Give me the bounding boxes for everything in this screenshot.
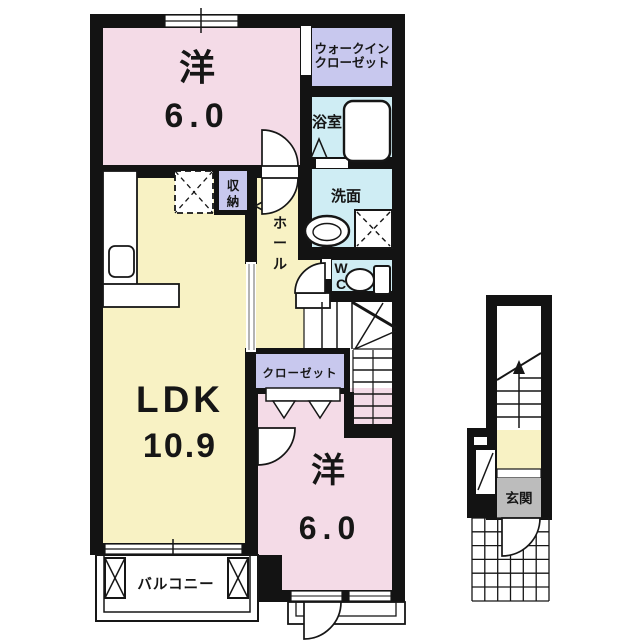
label-bedroom-bottom-size: 6.0 xyxy=(299,510,361,546)
label-ldk-size: 10.9 xyxy=(143,427,217,465)
first-floor-strip xyxy=(467,295,552,601)
label-hall-char1: ホ xyxy=(273,215,287,231)
label-bathroom: 浴室 xyxy=(312,113,342,131)
label-wic-line1: ウォークイン xyxy=(314,42,389,56)
label-wc-line1: W xyxy=(334,260,348,276)
wall-wic-bath xyxy=(300,86,396,97)
label-bedroom-bottom: 洋 xyxy=(311,452,345,490)
wall-right xyxy=(392,14,405,602)
door-arc-entrance-2f xyxy=(304,602,341,639)
porch-2f xyxy=(288,602,405,639)
kitchen-counter-horizontal xyxy=(103,284,179,307)
wall-stairs-top xyxy=(320,291,405,302)
toilet-icon xyxy=(346,266,390,294)
window-bedroom-bottom xyxy=(291,591,391,601)
strip-bump-window xyxy=(474,437,487,445)
washer-pan-icon xyxy=(355,210,392,248)
label-entrance: 玄関 xyxy=(506,490,533,506)
label-wic-line2: クローゼット xyxy=(314,55,389,70)
strip-step xyxy=(497,469,541,478)
label-bedroom-top-size: 6.0 xyxy=(164,97,229,135)
label-hall-char3: ル xyxy=(273,256,287,272)
bathtub-icon xyxy=(344,101,390,161)
floor-plan-svg: 洋 6.0 ウォークイン クローゼット 浴室 洗面 W C ホ ー ル 収 納 … xyxy=(0,0,640,640)
wall-stairs-bottom xyxy=(344,424,405,438)
wall-top xyxy=(90,14,405,28)
sink-inner-icon xyxy=(313,224,341,241)
strip-landing xyxy=(497,430,541,469)
porch-grid-1f xyxy=(472,518,549,601)
label-washroom: 洗面 xyxy=(331,187,361,205)
door-arc-entrance-1f xyxy=(502,518,540,556)
label-bedroom-top: 洋 xyxy=(179,47,215,88)
wall-corner-chunk xyxy=(255,555,282,602)
toilet-tank xyxy=(374,266,390,294)
label-hall-char2: ー xyxy=(273,235,287,251)
wall-hall-washroom xyxy=(298,165,312,260)
closet-rod xyxy=(266,388,340,401)
label-storage-char1: 収 xyxy=(227,178,240,193)
label-ldk: LDK xyxy=(136,379,224,420)
label-wc-line2: C xyxy=(336,276,346,292)
opening-wic xyxy=(301,26,311,75)
label-balcony: バルコニー xyxy=(137,576,214,593)
label-storage-char2: 納 xyxy=(227,194,240,209)
wall-left xyxy=(90,14,103,555)
stairs-2f-top-step xyxy=(296,293,330,308)
sliding-partition-ldk-hall xyxy=(246,262,256,352)
opening-bath-door xyxy=(316,159,348,168)
toilet-bowl xyxy=(346,269,374,291)
kitchen-sink-icon xyxy=(109,246,134,277)
stairs-2f-rail-diagonal xyxy=(352,302,396,328)
balcony-post-right xyxy=(228,558,248,598)
label-closet: クローゼット xyxy=(263,366,338,380)
refrigerator-space-icon xyxy=(175,171,213,213)
balcony-post-left xyxy=(105,558,125,598)
floor-plan-image: 洋 6.0 ウォークイン クローゼット 浴室 洗面 W C ホ ー ル 収 納 … xyxy=(0,0,640,640)
washer-pan-frame xyxy=(355,210,392,248)
